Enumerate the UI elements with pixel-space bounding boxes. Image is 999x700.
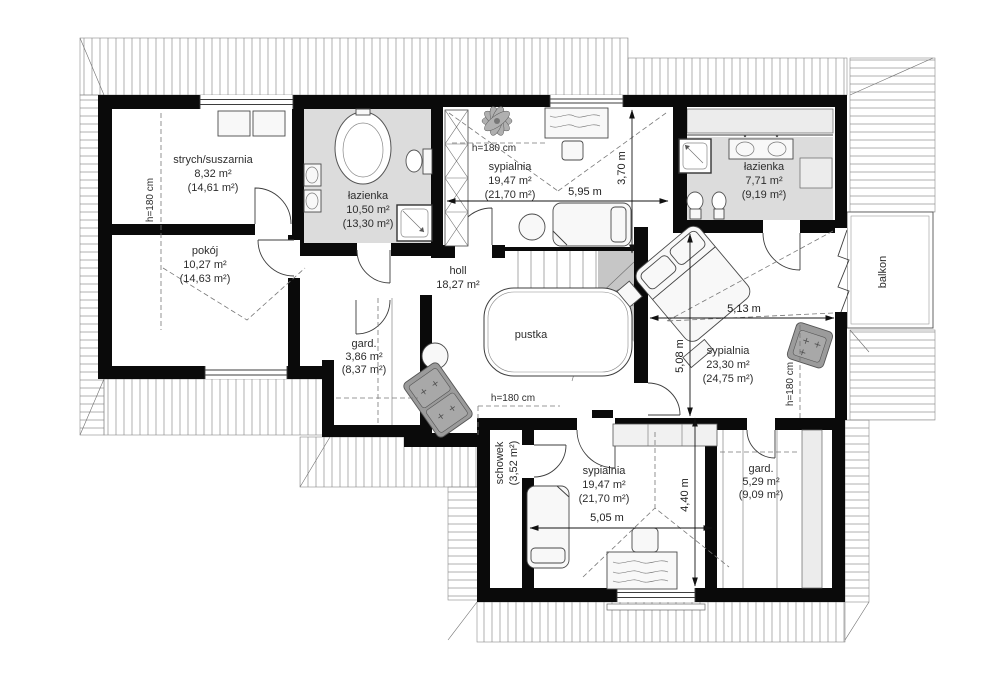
room-area: 10,27 m² bbox=[183, 259, 227, 271]
door-arc-strych[interactable] bbox=[255, 188, 291, 224]
roof-band-top-right bbox=[628, 58, 847, 95]
chair-icon bbox=[562, 141, 583, 160]
room-name: sypialnia bbox=[489, 161, 533, 173]
room-area: 3,86 m² bbox=[345, 351, 383, 363]
door-opening bbox=[577, 418, 615, 430]
room-name: łazienka bbox=[744, 161, 785, 173]
window bbox=[200, 95, 293, 109]
cabinet-icon bbox=[800, 158, 832, 188]
plant-icon bbox=[482, 105, 513, 137]
roof-band-top bbox=[80, 38, 628, 95]
wall bbox=[420, 425, 432, 435]
sink-icon bbox=[304, 164, 321, 186]
wall bbox=[477, 418, 490, 602]
balcony-slab bbox=[847, 212, 933, 328]
window bbox=[205, 366, 287, 379]
wardrobe-icon bbox=[445, 110, 468, 246]
shower-icon bbox=[679, 139, 711, 173]
chair-icon bbox=[632, 528, 658, 552]
dimension-label: 5,08 m bbox=[674, 339, 686, 373]
bidet-icon bbox=[712, 192, 726, 219]
closet-shelving bbox=[723, 430, 822, 588]
storage-box-icon bbox=[218, 111, 250, 136]
roof-band-bottom-left bbox=[104, 379, 330, 435]
room-area: 8,32 m² bbox=[194, 168, 232, 180]
room-name: schowek bbox=[494, 441, 506, 484]
window bbox=[550, 95, 623, 107]
room-name: sypialnia bbox=[707, 345, 751, 357]
room-total-area: (8,37 m²) bbox=[342, 364, 387, 376]
room-area: 10,50 m² bbox=[346, 204, 390, 216]
wardrobe-icon bbox=[613, 424, 717, 446]
door-opening bbox=[634, 383, 648, 415]
bed-icon bbox=[527, 486, 569, 568]
room-total-area: (13,30 m²) bbox=[343, 218, 394, 230]
ceiling-height-label: h=180 cm bbox=[785, 362, 796, 406]
door-opening bbox=[455, 245, 492, 258]
roof-band-right-top bbox=[850, 58, 935, 212]
room-total-area: (9,09 m²) bbox=[739, 489, 784, 501]
ceiling-height-label: h=180 cm bbox=[472, 143, 516, 154]
room-area: 23,30 m² bbox=[706, 359, 750, 371]
room-name: balkon bbox=[877, 256, 889, 288]
door-opening bbox=[288, 240, 300, 278]
roof-band-right-mid bbox=[850, 330, 935, 420]
toilet-icon bbox=[406, 149, 432, 174]
room-total-area: (9,19 m²) bbox=[742, 189, 787, 201]
door-opening bbox=[522, 445, 534, 478]
window-sill bbox=[607, 604, 705, 610]
dimension-label: 4,40 m bbox=[679, 478, 691, 512]
room-total-area: (3,52 m²) bbox=[508, 441, 520, 486]
door-arc-sypialnia-bottom[interactable] bbox=[577, 430, 615, 468]
desk-icon bbox=[607, 552, 677, 589]
wall bbox=[98, 95, 112, 379]
room-total-area: (14,63 m²) bbox=[180, 273, 231, 285]
room-name: pustka bbox=[515, 329, 548, 341]
door-arc-sypialnia-right[interactable] bbox=[648, 383, 680, 415]
door-opening bbox=[747, 418, 775, 430]
room-total-area: (21,70 m²) bbox=[579, 493, 630, 505]
shower-icon bbox=[397, 205, 432, 241]
ceiling-height-label: h=180 cm bbox=[145, 178, 156, 222]
room-name: strych/suszarnia bbox=[173, 154, 253, 166]
dimension-label: 5,95 m bbox=[568, 186, 602, 198]
room-total-area: (21,70 m²) bbox=[485, 189, 536, 201]
floor-plan-page: 5,95 m 3,70 m 5,13 m 5,08 m 5,05 m 4,40 … bbox=[0, 0, 999, 700]
wall bbox=[835, 95, 847, 228]
staircase bbox=[484, 251, 634, 381]
room-area: 19,47 m² bbox=[582, 479, 626, 491]
room-area: 5,29 m² bbox=[742, 476, 780, 488]
sink-icon bbox=[304, 190, 321, 212]
ceiling-height-label: h=180 cm bbox=[491, 393, 535, 404]
door-arc-gard-small[interactable] bbox=[356, 300, 390, 334]
wall bbox=[832, 418, 845, 602]
room-name: pokój bbox=[192, 245, 218, 257]
bed-icon bbox=[553, 203, 631, 246]
roof-band-right-low bbox=[845, 420, 869, 602]
window bbox=[607, 588, 705, 610]
room-name: gard. bbox=[748, 463, 773, 475]
room-area: 18,27 m² bbox=[436, 279, 480, 291]
door-opening bbox=[763, 220, 800, 233]
room-name: łazienka bbox=[348, 190, 389, 202]
door-arc-gard-large[interactable] bbox=[747, 430, 775, 458]
room-total-area: (24,75 m²) bbox=[703, 373, 754, 385]
room-area: 19,47 m² bbox=[488, 175, 532, 187]
stair-edge-wall bbox=[505, 247, 636, 251]
wall bbox=[628, 95, 847, 107]
bathroom-right-counter-strip bbox=[687, 109, 833, 133]
door-opening bbox=[255, 224, 292, 235]
balcony-folding-door[interactable] bbox=[835, 228, 849, 312]
room-name: holl bbox=[449, 265, 466, 277]
wall bbox=[431, 95, 443, 258]
door-opening bbox=[357, 243, 391, 256]
balcony bbox=[847, 212, 933, 328]
stair-void-outline bbox=[484, 288, 632, 376]
door-arc-schowek[interactable] bbox=[534, 445, 566, 477]
pouf-icon bbox=[519, 214, 545, 240]
dimension-label: 5,05 m bbox=[590, 512, 624, 524]
room-area: 7,71 m² bbox=[745, 175, 783, 187]
room-total-area: (14,61 m²) bbox=[188, 182, 239, 194]
dimension-label: 5,13 m bbox=[727, 303, 761, 315]
room-name: gard. bbox=[351, 338, 376, 350]
floor-plan-drawing: 5,95 m 3,70 m 5,13 m 5,08 m 5,05 m 4,40 … bbox=[0, 0, 999, 700]
dimension-label: 3,70 m bbox=[616, 151, 628, 185]
roof-band-mid-left bbox=[448, 487, 478, 600]
room-name: sypialnia bbox=[583, 465, 627, 477]
wall bbox=[835, 312, 847, 420]
storage-box-icon bbox=[253, 111, 285, 136]
desk-icon bbox=[545, 108, 608, 138]
